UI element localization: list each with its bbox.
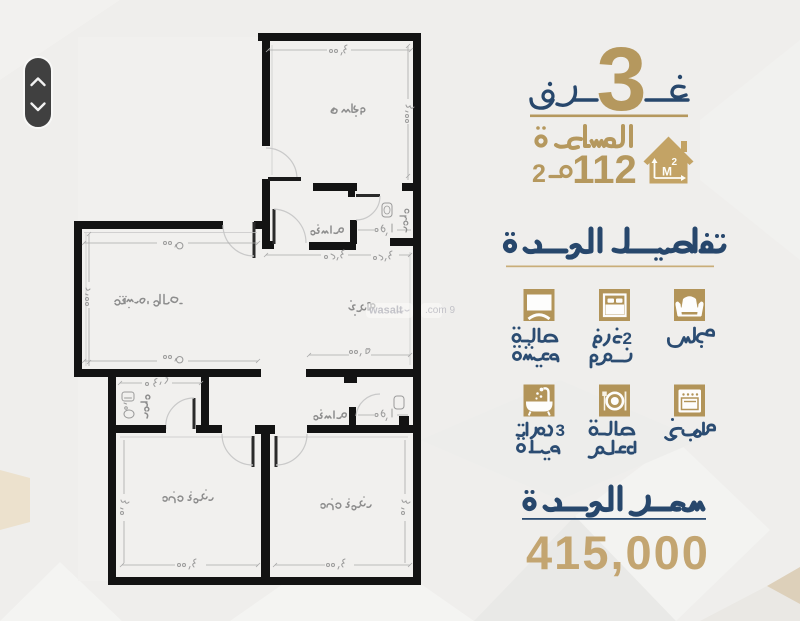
svg-text:2: 2 [672, 157, 678, 168]
svg-text:3: 3 [556, 421, 565, 440]
svg-text:112: 112 [572, 148, 637, 192]
svg-text:415,000: 415,000 [526, 526, 710, 579]
svg-text:wasalt: wasalt [368, 305, 403, 317]
svg-text:2: 2 [623, 329, 632, 348]
svg-text:2: 2 [532, 160, 546, 188]
svg-text:.com 9: .com 9 [425, 305, 455, 316]
svg-text:M: M [662, 165, 672, 179]
